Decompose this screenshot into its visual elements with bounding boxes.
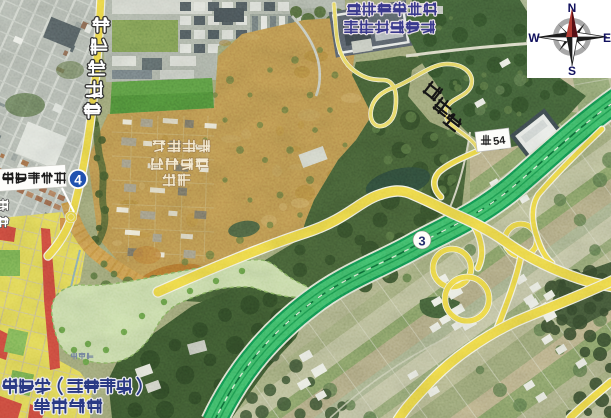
svg-text:54: 54 (493, 134, 507, 148)
svg-text:3: 3 (418, 234, 425, 249)
svg-text:S: S (568, 64, 576, 78)
svg-text:N: N (568, 1, 577, 15)
svg-text:E: E (603, 31, 611, 45)
svg-text:4: 4 (74, 173, 82, 188)
svg-text:W: W (528, 31, 540, 45)
